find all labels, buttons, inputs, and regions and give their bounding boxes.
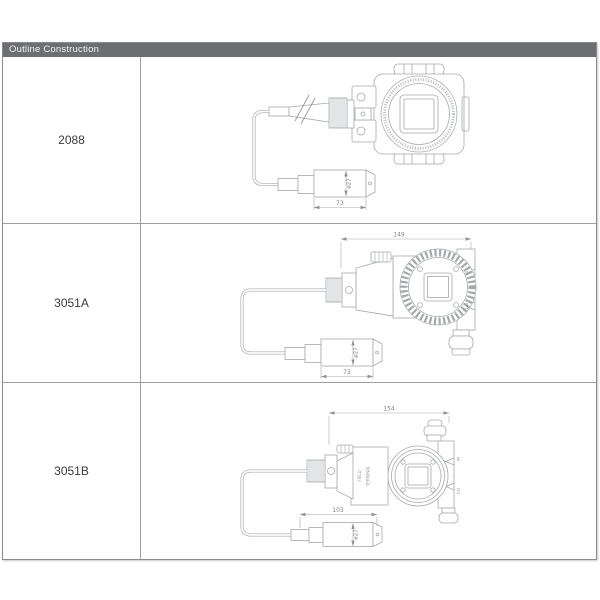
cable xyxy=(242,471,307,535)
dim-text-flange-top: 95 xyxy=(457,457,461,461)
outline-drawing-2088: ø27 73 xyxy=(141,57,596,223)
table-header-title: Outline Construction xyxy=(9,44,99,55)
dim-text-flange-bottom: 112 xyxy=(457,488,461,495)
bottom-cable-gland xyxy=(449,336,473,349)
model-label-3051b: 3051B xyxy=(3,383,141,559)
dim-text-probe-length: 103 xyxy=(332,507,344,514)
drawing-cell-2088: ø27 73 xyxy=(141,57,596,223)
drawing-cell-3051a: 149 xyxy=(141,224,596,382)
dim-text-flange-top: 95 xyxy=(465,271,469,275)
body-text-line1: FIELD xyxy=(357,470,362,481)
dim-text-flange-bottom: 112 xyxy=(465,303,469,310)
dimension-probe-length: 73 xyxy=(321,367,373,379)
dim-text-probe-diameter: ø27 xyxy=(354,529,360,540)
model-label-2088: 2088 xyxy=(3,57,141,223)
probe xyxy=(278,170,375,197)
outline-drawing-3051b: 154 FIELD TERMINAL xyxy=(141,383,596,559)
dim-text-probe-length: 73 xyxy=(343,369,351,376)
drawing-cell-3051b: 154 FIELD TERMINAL xyxy=(141,383,596,559)
cable-gland xyxy=(329,98,347,128)
table-row-2088: 2088 xyxy=(3,57,596,223)
transmitter-head: FIELD TERMINAL xyxy=(307,420,461,523)
dim-text-probe-diameter: ø27 xyxy=(354,347,360,358)
dimension-probe-length: 73 xyxy=(314,198,366,210)
dim-text-overall-width: 154 xyxy=(383,406,395,413)
probe xyxy=(291,523,382,547)
dim-text-probe-length: 73 xyxy=(336,200,344,207)
probe xyxy=(285,339,382,366)
table-row-3051b: 3051B 154 xyxy=(3,382,596,559)
dim-text-overall-width: 149 xyxy=(393,232,405,239)
cable-gland xyxy=(307,460,325,482)
outline-drawing-3051a: 149 xyxy=(141,224,596,382)
model-label-3051a: 3051A xyxy=(3,224,141,382)
table-header: Outline Construction xyxy=(3,43,596,57)
outline-construction-table: Outline Construction 2088 xyxy=(2,42,597,560)
body-text-line2: TERMINAL xyxy=(366,465,371,487)
table-row-3051a: 3051A 149 xyxy=(3,223,596,382)
cable xyxy=(242,290,326,353)
dim-text-probe-diameter: ø27 xyxy=(347,178,353,189)
